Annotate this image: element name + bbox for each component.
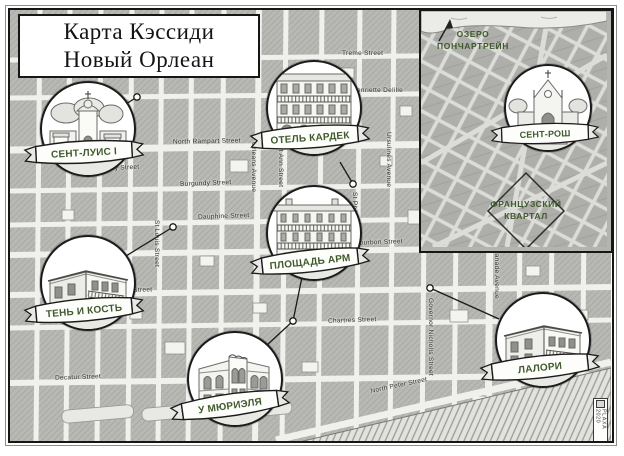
street-label-ursulines: Ursulines Avenue (385, 132, 392, 187)
signature-text: PLAXA 2020 (595, 409, 607, 443)
street-label-st-louis: St Louis Street (153, 220, 160, 267)
map-canvas: Treme Street Henriette Delille North Ram… (10, 10, 612, 441)
street-label-governor-nicholls: Governor Nicholls Street (427, 298, 434, 376)
vignette-label: СЕНТ-РОШ (519, 128, 570, 140)
french-quarter-label: ФРАНЦУЗСКИЙ КВАРТАЛ (469, 198, 583, 222)
banner-ribbon: СЕНТ-РОШ (490, 117, 601, 150)
street-label-north-rampart: North Rampart Street (173, 137, 241, 145)
signature-logo-icon (596, 400, 605, 408)
street-label-treme: Treme Street (342, 50, 383, 57)
lake-label: ОЗЕРО ПОНЧАРТРЕЙН (421, 28, 525, 52)
district-label-line2: КВАРТАЛ (469, 210, 583, 222)
map-page: Treme Street Henriette Delille North Ram… (0, 0, 624, 456)
district-label-line1: ФРАНЦУЗСКИЙ (469, 198, 583, 210)
map-title-line1: Карта Кэссиди (64, 18, 215, 46)
map-title-line2: Новый Орлеан (64, 46, 215, 74)
artist-signature: PLAXA 2020 (593, 398, 608, 443)
lake-label-line2: ПОНЧАРТРЕЙН (421, 40, 525, 52)
map-title: Карта Кэссиди Новый Орлеан (18, 14, 260, 78)
banner-ribbon: СЕНТ-ЛУИС I (22, 133, 146, 171)
lake-label-line1: ОЗЕРО (421, 28, 525, 40)
map-frame: Treme Street Henriette Delille North Ram… (8, 8, 614, 443)
